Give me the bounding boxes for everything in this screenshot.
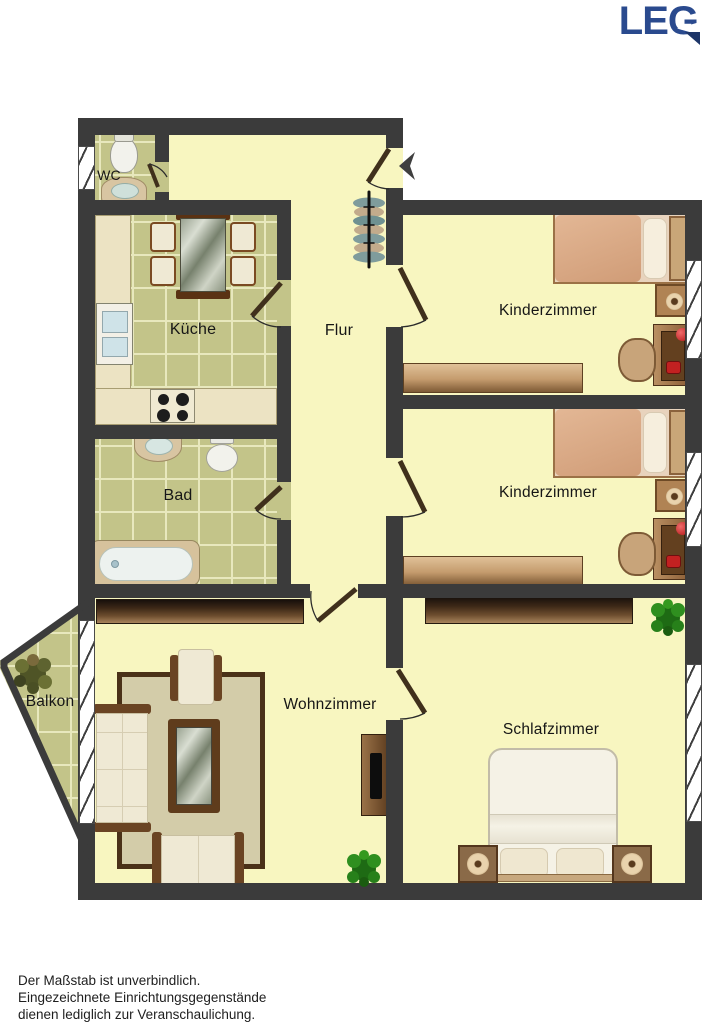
room-label-kinderzimmer-oben: Kinderzimmer: [499, 302, 597, 320]
room-label-kinderzimmer-unten: Kinderzimmer: [499, 484, 597, 502]
schlafzimmer-plant: [651, 599, 685, 636]
leg-logo-text: LEG: [619, 0, 698, 43]
leg-logo: LEG: [619, 0, 698, 42]
kueche-door: [252, 283, 281, 327]
disclaimer-text: Der Maßstab ist unverbindlich. Eingezeic…: [18, 972, 266, 1023]
disclaimer-line-2: Eingezeichnete Einrichtungsgegenstände: [18, 989, 266, 1006]
wohnzimmer-plant: [347, 850, 381, 887]
balkon-plant: [14, 654, 52, 694]
room-label-kueche: Küche: [170, 321, 216, 339]
room-label-bad: Bad: [163, 487, 192, 505]
room-label-balkon: Balkon: [26, 693, 75, 711]
wohnzimmer-door: [311, 589, 356, 621]
coat-rack: [353, 192, 385, 267]
entrance-arrow-icon: [399, 152, 415, 180]
disclaimer-line-3: dienen lediglich zur Veranschaulichung.: [18, 1006, 266, 1023]
bad-door: [256, 487, 281, 519]
room-label-flur: Flur: [325, 322, 353, 340]
room-label-wc: WC: [97, 167, 121, 183]
entrance-door: [368, 149, 389, 189]
schlafzimmer-door: [398, 670, 425, 719]
balkon-outline: [4, 601, 90, 858]
kinderzimmer-oben-door: [400, 268, 426, 327]
wc-door: [149, 164, 167, 187]
floor-plan-page: WC Küche Flur Kinderzimmer Kinderzimmer …: [0, 0, 710, 1024]
room-label-wohnzimmer: Wohnzimmer: [283, 696, 376, 714]
room-label-schlafzimmer: Schlafzimmer: [503, 721, 599, 739]
kinderzimmer-unten-door: [400, 461, 425, 517]
plan-symbol-overlay: [0, 0, 710, 1024]
disclaimer-line-1: Der Maßstab ist unverbindlich.: [18, 972, 266, 989]
